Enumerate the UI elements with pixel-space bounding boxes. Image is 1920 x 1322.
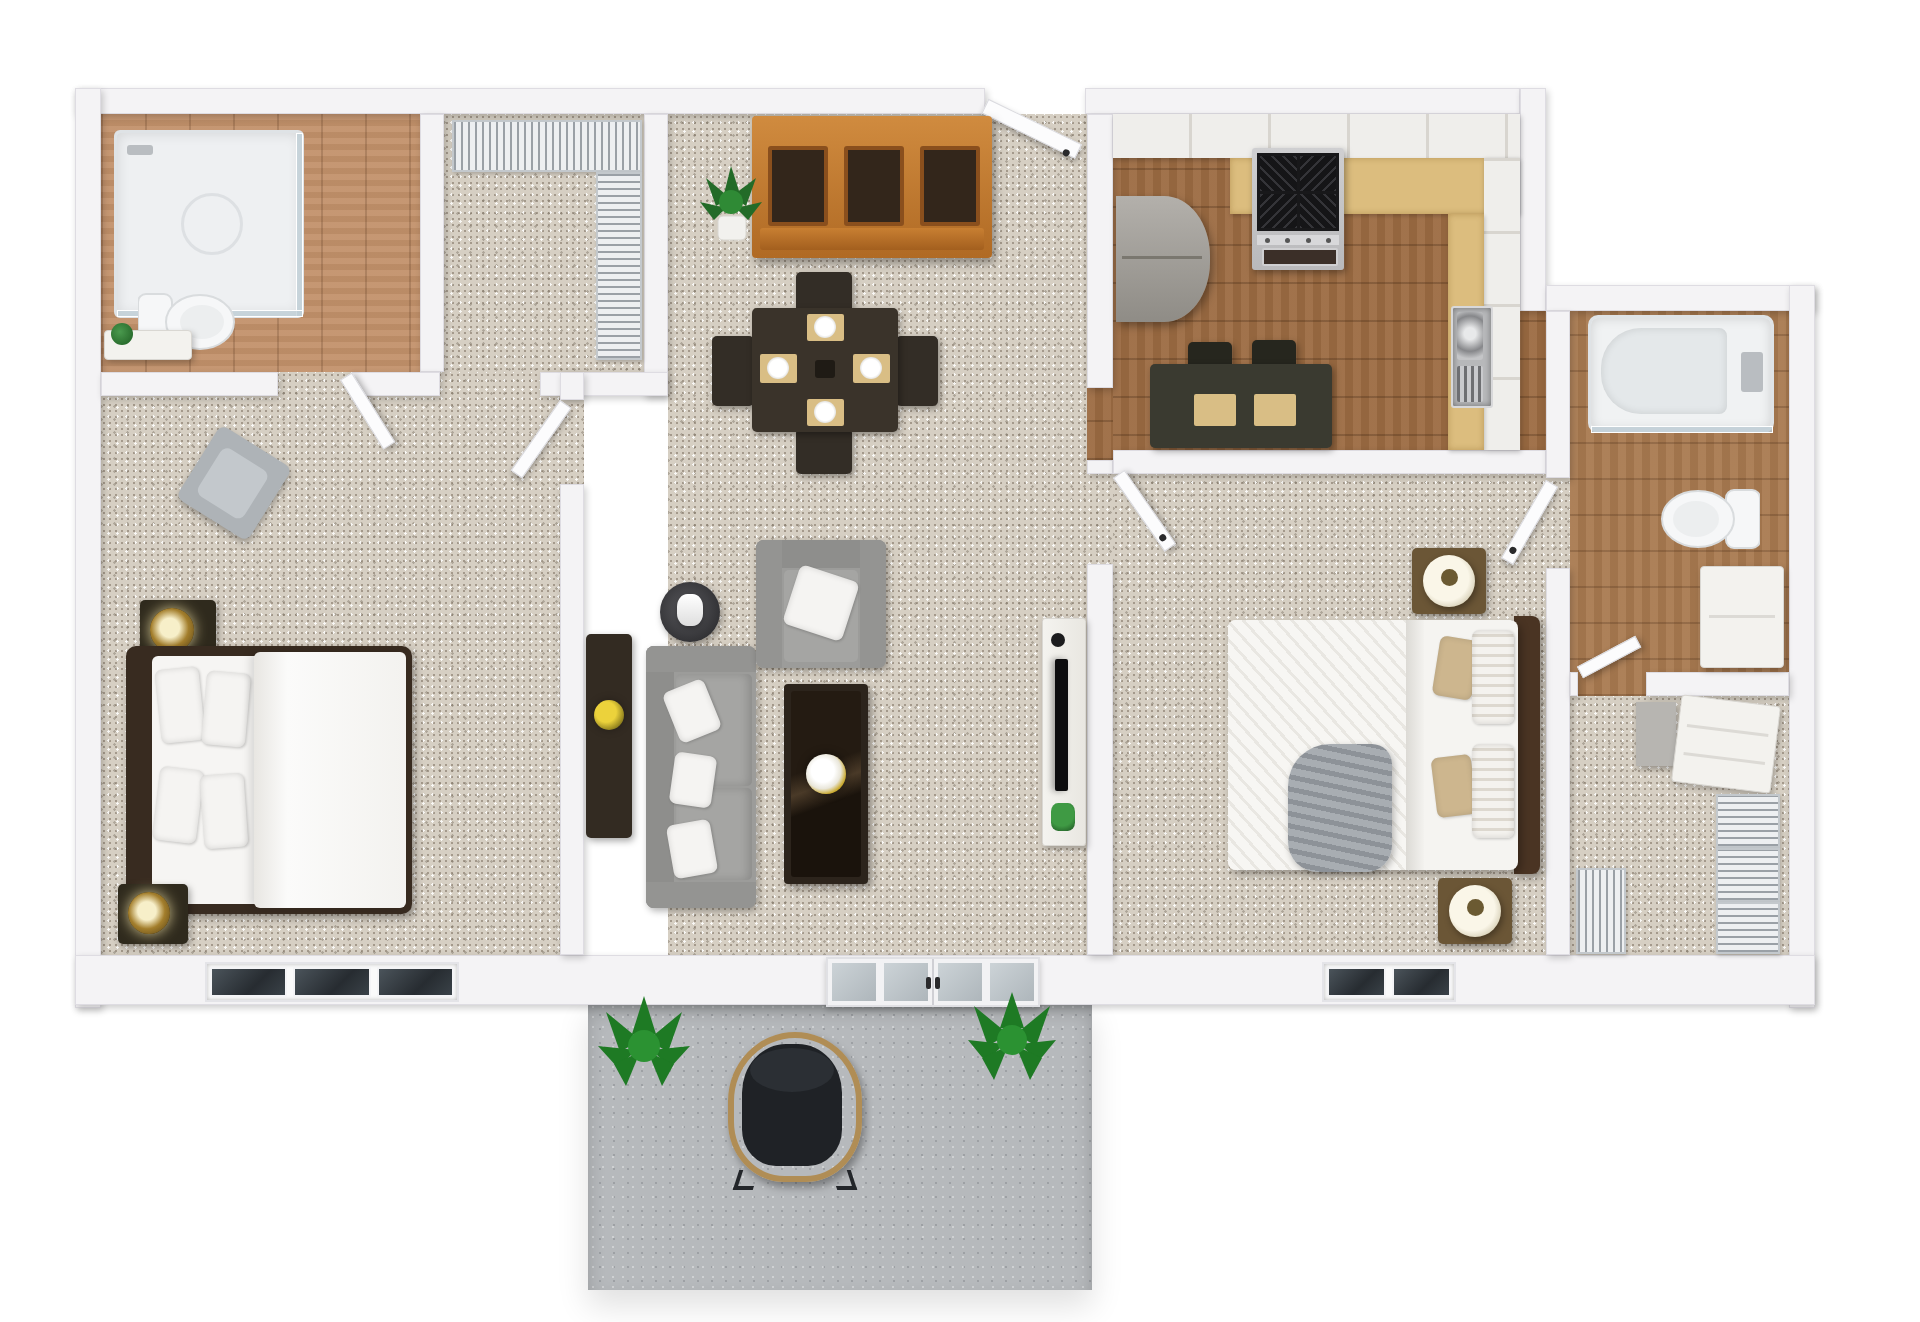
french-door-handle	[935, 977, 940, 989]
closet-2-shelf	[1716, 794, 1780, 848]
outer-wall-right-kitchen	[1520, 88, 1546, 311]
placemat	[807, 314, 844, 341]
french-door-pane	[882, 961, 930, 1003]
closet-2-dresser	[1671, 694, 1781, 794]
wing-wall-top	[1546, 285, 1815, 311]
patio-chair-pillow	[750, 1048, 834, 1092]
bed-2-pillow	[1472, 630, 1514, 724]
sideboard	[586, 634, 632, 838]
tub-basin	[1601, 328, 1727, 414]
plate	[814, 401, 836, 423]
table-lamp-gold	[128, 892, 170, 934]
placemat	[1194, 394, 1236, 426]
sink-basin	[1457, 312, 1483, 360]
refrigerator	[1116, 196, 1210, 322]
burner	[1300, 194, 1337, 229]
stove-grates	[1257, 153, 1339, 231]
bed-1-pillow	[152, 766, 205, 845]
range-stove	[1252, 148, 1344, 270]
refrigerator-door-split	[1122, 256, 1202, 259]
accent-chair-cushion	[195, 445, 270, 521]
wall-living-bedroom2	[1087, 564, 1113, 955]
bed-1-pillow	[154, 666, 205, 744]
french-door-pane	[830, 961, 878, 1003]
bed-2-pillow	[1472, 744, 1514, 838]
floor-lamp-shade	[677, 594, 703, 626]
dining-chair-left	[712, 336, 754, 406]
shower-fixture	[127, 145, 153, 155]
closet-2-shelf	[1716, 902, 1780, 954]
breakfast-table	[1150, 364, 1332, 448]
wall-bath1-bottom-b	[352, 372, 440, 396]
vanity-1	[104, 330, 192, 360]
plate	[814, 316, 836, 338]
placemat	[760, 354, 797, 383]
placemat	[853, 354, 890, 383]
wall-kitchen-bedroom2	[1113, 450, 1546, 474]
sofa-back	[646, 646, 674, 908]
armchair	[756, 540, 886, 668]
wing-wall-right	[1789, 285, 1815, 1008]
stove-controls	[1257, 235, 1339, 245]
wall-bath1-closet	[420, 114, 444, 372]
tv-console	[1042, 618, 1086, 846]
vanity-2-drawer-line	[1709, 615, 1775, 618]
floor-plan-render	[0, 0, 1920, 1322]
closet-2-gray-cabinet	[1636, 702, 1676, 766]
coffee-table-flowers	[806, 754, 846, 794]
table-centerpiece	[815, 360, 835, 378]
nightstand-2-bottom	[1438, 878, 1512, 944]
patio-plant-left	[596, 994, 692, 1094]
placemat	[807, 399, 844, 426]
hutch-cabinet	[752, 116, 992, 258]
toilet-2	[1656, 486, 1760, 552]
hutch-glass-panel	[920, 146, 980, 226]
tub-glass-panel	[1591, 426, 1773, 433]
shower-drain	[181, 193, 243, 255]
dining-plant	[694, 164, 768, 248]
burner	[1260, 194, 1297, 229]
closet-2-shelf-left	[1576, 868, 1626, 954]
oven-door	[1262, 248, 1338, 266]
bed-2-tan-pillow	[1430, 754, 1477, 818]
burner	[1260, 156, 1297, 191]
console-plant	[1051, 803, 1075, 831]
patio-chair	[728, 1032, 862, 1182]
hutch-drawers	[760, 228, 984, 250]
plate	[860, 357, 882, 379]
sofa-arm	[646, 646, 756, 672]
drum-lamp-center	[1467, 899, 1484, 916]
coffee-table	[784, 684, 868, 884]
sofa-pillow	[666, 819, 719, 880]
window-pane	[210, 967, 287, 997]
wall-bedroom2-wing-top	[1546, 311, 1570, 478]
wall-bedroom1-right	[560, 484, 584, 955]
closet-1-shelf-top	[452, 120, 642, 172]
dining-chair-bottom	[796, 428, 852, 474]
armchair-arm	[860, 540, 886, 668]
speaker	[1051, 633, 1065, 647]
tv-screen	[1055, 659, 1068, 791]
wall-bedroom1-right-top	[560, 372, 584, 400]
french-door-leaf-left	[828, 959, 934, 1005]
window-pane	[1392, 967, 1451, 997]
wall-living-bedroom2-a	[1087, 460, 1113, 474]
hutch-glass-panel	[768, 146, 828, 226]
bed-1-pillow	[199, 773, 248, 850]
tub-fixture	[1741, 352, 1763, 392]
sofa-pillow	[669, 751, 718, 808]
bed-2	[1228, 616, 1540, 874]
wall-bedroom2-wing	[1546, 568, 1570, 955]
armchair-arm	[756, 540, 782, 668]
bedroom-2-window	[1322, 962, 1456, 1002]
french-door-handle	[926, 977, 931, 989]
drum-lamp	[1449, 885, 1501, 937]
bedroom-1-window	[205, 962, 459, 1002]
plate	[767, 357, 789, 379]
closet-2-shelf	[1716, 848, 1780, 902]
wall-closet-dining	[644, 114, 668, 396]
kitchen-entry-floor	[1087, 388, 1113, 460]
wall-bath2-closet2	[1646, 672, 1789, 696]
door-knob	[1158, 533, 1168, 543]
yellow-flowers	[594, 700, 624, 730]
closet-1-shelf-side	[596, 172, 642, 360]
window-pane	[1327, 967, 1386, 997]
bed-2-gray-throw	[1288, 744, 1392, 872]
bed-1	[126, 646, 412, 914]
nightstand-2-top	[1412, 548, 1486, 614]
nightstand-1-bottom	[118, 884, 188, 944]
window-pane	[293, 967, 370, 997]
bed-2-duvet-fold	[1406, 620, 1424, 870]
drum-lamp-center	[1441, 569, 1458, 586]
wall-bath1-bottom-a	[101, 372, 278, 396]
shower-glass-panel	[296, 133, 303, 317]
wall-bath2-closet2-a	[1570, 672, 1578, 696]
hutch-glass-panel	[844, 146, 904, 226]
outer-wall-top	[75, 88, 985, 114]
sofa	[646, 646, 756, 908]
floor-lamp	[660, 582, 720, 642]
dining-chair-right	[896, 336, 938, 406]
wall-dining-kitchen	[1087, 114, 1113, 388]
dining-table	[752, 308, 898, 432]
sink-drainboard	[1457, 366, 1483, 402]
window-pane	[377, 967, 454, 997]
bed-1-duvet	[254, 652, 406, 908]
placemat	[1254, 394, 1296, 426]
door-knob	[1508, 546, 1518, 556]
drum-lamp	[1423, 555, 1475, 607]
kitchen-sink	[1451, 306, 1493, 408]
tub-shower-2	[1588, 315, 1774, 433]
burner	[1300, 156, 1337, 191]
outer-wall-left	[75, 88, 101, 1008]
patio-plant-right	[966, 990, 1058, 1086]
sofa-arm	[646, 882, 756, 908]
vanity-plant	[111, 323, 133, 345]
outer-wall-top-right	[1085, 88, 1520, 114]
bed-1-pillow	[201, 670, 251, 748]
vanity-2	[1700, 566, 1784, 668]
